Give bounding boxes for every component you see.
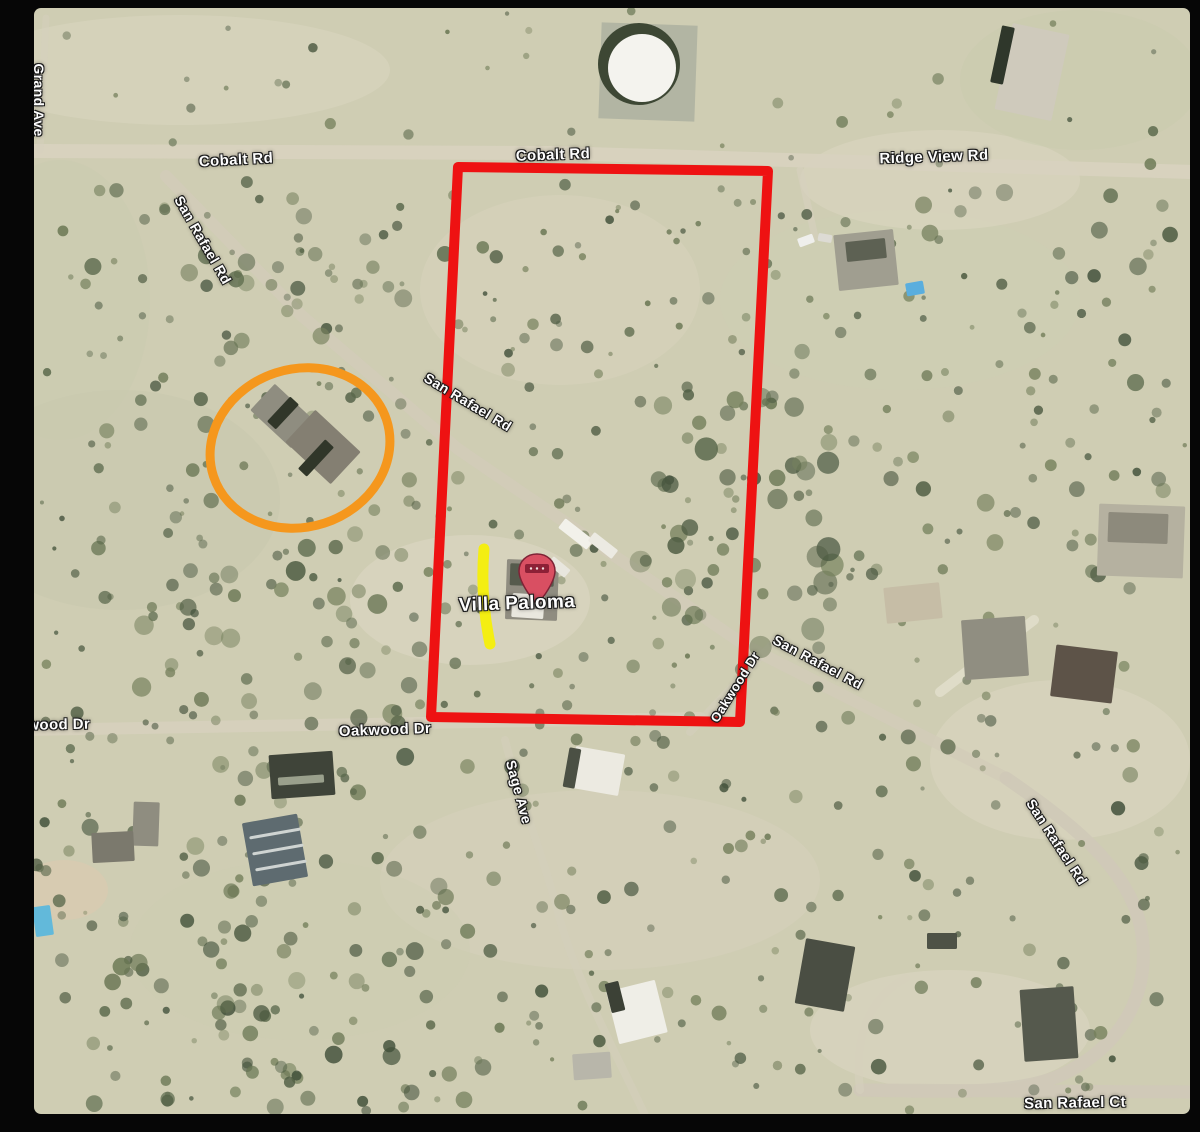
- shrub: [938, 564, 948, 574]
- shrub: [204, 212, 211, 219]
- shrub: [284, 294, 291, 301]
- shrub: [111, 258, 118, 265]
- shrub: [670, 297, 678, 305]
- shrub: [966, 877, 974, 885]
- shrub: [536, 653, 542, 659]
- shrub: [773, 709, 780, 716]
- shrub: [218, 1030, 229, 1041]
- shrub: [759, 1005, 767, 1013]
- shrub: [676, 323, 683, 330]
- shrub: [409, 612, 419, 622]
- shrub: [915, 197, 932, 214]
- shrub: [835, 327, 846, 338]
- shrub: [266, 279, 278, 291]
- shrub: [209, 573, 220, 584]
- shrub: [1041, 333, 1046, 338]
- shrub: [180, 914, 194, 928]
- shrub: [1050, 301, 1058, 309]
- shrub: [627, 8, 636, 15]
- shrub: [271, 1005, 280, 1014]
- shrub: [83, 911, 87, 915]
- shrub: [1045, 459, 1057, 471]
- shrub: [245, 915, 258, 928]
- shrub: [996, 184, 1013, 201]
- shrub: [1149, 417, 1155, 423]
- shrub: [957, 529, 963, 535]
- shrub: [215, 1019, 226, 1030]
- shrub: [372, 852, 384, 864]
- shrub: [567, 866, 576, 875]
- shrub: [838, 1083, 852, 1097]
- shrub: [183, 563, 198, 578]
- shrub: [958, 1089, 967, 1098]
- shrub: [402, 472, 417, 487]
- shrub: [905, 1105, 914, 1114]
- shrub: [710, 645, 715, 650]
- shrub: [1069, 481, 1085, 497]
- shrub: [872, 849, 883, 860]
- shrub: [234, 333, 250, 349]
- shrub: [846, 573, 853, 580]
- shrub: [848, 435, 859, 446]
- shrub: [523, 53, 529, 59]
- shrub: [288, 972, 305, 989]
- shrub: [1149, 992, 1163, 1006]
- shrub: [139, 214, 150, 225]
- shrub: [661, 524, 666, 529]
- screenshot-root: { "map": { "description": "Aerial satell…: [0, 0, 1200, 1132]
- shrub: [579, 652, 589, 662]
- shrub: [732, 495, 739, 502]
- shrub: [138, 274, 147, 283]
- shrub: [854, 312, 862, 320]
- shrub: [449, 657, 461, 669]
- shrub: [972, 750, 980, 758]
- shrub: [393, 582, 403, 592]
- shrub: [1175, 850, 1180, 855]
- shrub: [186, 463, 200, 477]
- shrub: [84, 258, 101, 275]
- shrub: [238, 275, 254, 291]
- shrub: [550, 338, 563, 351]
- shrub: [567, 128, 575, 136]
- shrub: [313, 598, 325, 610]
- shrub: [720, 406, 735, 421]
- shrub: [1092, 742, 1101, 751]
- shrub: [411, 501, 420, 510]
- shrub: [272, 261, 284, 273]
- shrub: [468, 584, 478, 594]
- shrub: [86, 1095, 103, 1112]
- shrub: [1150, 240, 1157, 247]
- shrub: [749, 636, 771, 658]
- shrub: [203, 941, 219, 957]
- terrain-patch: [34, 15, 390, 125]
- shrub: [553, 668, 563, 678]
- shrub: [325, 118, 336, 129]
- shrub: [940, 739, 955, 754]
- shrub: [359, 662, 375, 678]
- shrub: [404, 966, 415, 977]
- shrub: [217, 995, 235, 1013]
- building-house-left-small2: [91, 831, 135, 863]
- shrub: [650, 783, 659, 792]
- shrub: [1029, 368, 1041, 380]
- shrub: [357, 468, 363, 474]
- shrub: [68, 274, 73, 279]
- shrub: [707, 564, 719, 576]
- shrub: [40, 865, 51, 876]
- shrub: [1143, 249, 1154, 260]
- shrub: [1066, 1097, 1077, 1108]
- shrub: [1066, 540, 1078, 552]
- shrub: [773, 1061, 782, 1070]
- shrub: [721, 779, 731, 789]
- shrub: [1121, 915, 1130, 924]
- shrub: [608, 637, 615, 644]
- shrub: [806, 902, 817, 913]
- shrub: [383, 1040, 395, 1052]
- shrub: [784, 397, 803, 416]
- shrub: [441, 701, 448, 708]
- shrub: [337, 767, 348, 778]
- shrub: [728, 335, 737, 344]
- shrub: [158, 373, 168, 383]
- shrub: [991, 800, 1001, 810]
- shrub: [1091, 222, 1108, 239]
- shrub: [569, 684, 575, 690]
- shrub: [246, 1066, 259, 1079]
- shrub: [667, 229, 672, 234]
- shrub: [78, 645, 85, 652]
- shrub: [1103, 708, 1110, 715]
- shrub: [309, 573, 317, 581]
- shrub: [794, 491, 805, 502]
- shrub: [194, 392, 208, 406]
- water-tank-icon: [608, 34, 676, 102]
- shrub: [63, 845, 74, 856]
- shrub: [396, 948, 404, 956]
- shrub: [204, 493, 219, 508]
- shrub: [54, 630, 58, 634]
- shrub: [159, 204, 170, 215]
- shrub: [726, 527, 739, 540]
- shrub: [218, 920, 231, 933]
- shrub: [277, 944, 292, 959]
- shrub: [795, 1064, 806, 1075]
- shrub: [597, 890, 611, 904]
- shrub: [205, 626, 224, 645]
- shrub: [904, 859, 915, 870]
- shrub: [1089, 404, 1099, 414]
- shrub: [396, 203, 404, 211]
- shrub: [533, 1039, 539, 1045]
- shrub: [1017, 308, 1026, 317]
- shrub: [1156, 483, 1171, 498]
- shrub: [667, 537, 684, 554]
- shrub: [398, 1102, 409, 1113]
- shrub: [720, 143, 725, 148]
- shrub: [134, 615, 154, 635]
- shrub: [883, 471, 898, 486]
- shrub: [379, 230, 389, 240]
- shrub: [695, 437, 718, 460]
- shrub: [221, 629, 240, 648]
- shrub: [647, 924, 655, 932]
- shrub: [267, 1099, 284, 1114]
- shrub: [460, 759, 475, 774]
- shrub: [854, 550, 865, 561]
- shrub: [954, 205, 966, 217]
- shrub: [806, 489, 813, 496]
- shrub: [381, 645, 391, 655]
- shrub: [519, 333, 530, 344]
- shrub: [1009, 915, 1015, 921]
- shrub: [1162, 227, 1178, 243]
- shrub: [657, 736, 670, 749]
- shrub: [434, 1096, 440, 1102]
- shrub: [429, 1070, 436, 1077]
- shrub: [442, 1066, 457, 1081]
- shrub: [335, 324, 343, 332]
- building-house-ne-roof: [845, 238, 887, 262]
- shrub: [152, 723, 159, 730]
- shrub: [189, 711, 197, 719]
- shrub: [914, 657, 919, 662]
- shrub: [1108, 359, 1116, 367]
- shrub: [363, 410, 374, 421]
- shrub: [941, 368, 949, 376]
- building-house-tan-right: [883, 582, 942, 624]
- shrub: [347, 526, 363, 542]
- shrub: [166, 579, 179, 592]
- shrub: [135, 394, 147, 406]
- shrub: [922, 523, 933, 534]
- shrub: [792, 456, 807, 471]
- shrub: [772, 98, 783, 109]
- shrub: [403, 129, 413, 139]
- shrub: [585, 950, 593, 958]
- shrub: [1020, 443, 1026, 449]
- shrub: [675, 569, 696, 590]
- shrub: [501, 363, 515, 377]
- shrub: [801, 209, 812, 220]
- shrub: [519, 749, 527, 757]
- shrub: [821, 434, 838, 451]
- shrub: [601, 594, 608, 601]
- shrub: [1111, 801, 1125, 815]
- shrub: [907, 225, 912, 230]
- shrub: [887, 111, 894, 118]
- shrub: [180, 852, 189, 861]
- shrub: [757, 588, 768, 599]
- shrub: [1010, 507, 1021, 518]
- shrub: [214, 356, 225, 367]
- shrub: [109, 502, 121, 514]
- shrub: [868, 1019, 883, 1034]
- shrub: [58, 799, 67, 808]
- shrub: [210, 583, 223, 596]
- shrub: [788, 155, 794, 161]
- shrub: [304, 682, 322, 700]
- shrub: [594, 369, 603, 378]
- shrub: [1162, 379, 1171, 388]
- shrub: [691, 995, 702, 1006]
- shrub: [98, 591, 111, 604]
- shrub: [292, 298, 303, 309]
- shrub: [682, 382, 693, 393]
- building-bottom-right-house: [1020, 986, 1079, 1062]
- shrub: [570, 544, 583, 557]
- map-graphics: [34, 8, 1190, 1114]
- shrub: [921, 370, 932, 381]
- shrub: [294, 653, 302, 661]
- shrub: [71, 706, 84, 719]
- shrub: [1034, 406, 1043, 415]
- shrub: [1077, 309, 1086, 318]
- shrub: [308, 247, 322, 261]
- shrub: [702, 292, 714, 304]
- shrub: [742, 313, 751, 322]
- shrub: [764, 834, 770, 840]
- shrub: [319, 854, 333, 868]
- shrub: [731, 507, 737, 513]
- shrub: [789, 368, 799, 378]
- shrub: [66, 744, 75, 753]
- shrub: [1050, 20, 1057, 27]
- shrub: [88, 440, 95, 447]
- shrub: [923, 879, 934, 890]
- shrub: [556, 321, 562, 327]
- shrub: [239, 461, 248, 470]
- shrub: [727, 1041, 732, 1046]
- shrub: [813, 682, 824, 693]
- shrub: [969, 186, 982, 199]
- shrub: [413, 826, 426, 839]
- shrub: [493, 298, 497, 302]
- shrub: [216, 958, 227, 969]
- shrub: [824, 425, 833, 434]
- shrub: [608, 352, 612, 356]
- shrub: [718, 185, 725, 192]
- building-house-mid-right: [961, 616, 1029, 680]
- shrub: [143, 719, 149, 725]
- shrub: [349, 638, 359, 648]
- shrub: [485, 66, 490, 71]
- shrub: [85, 812, 91, 818]
- shrub: [166, 315, 174, 323]
- shrub: [100, 352, 107, 359]
- shrub: [225, 26, 230, 31]
- shrub: [234, 983, 247, 996]
- shrub: [366, 260, 379, 273]
- shrub: [200, 280, 212, 292]
- shrub: [360, 280, 368, 288]
- shrub: [197, 650, 204, 657]
- shrub: [973, 1059, 984, 1070]
- shrub: [1084, 453, 1091, 460]
- shrub: [241, 673, 253, 685]
- shrub: [571, 734, 583, 746]
- shrub: [284, 932, 298, 946]
- shrub: [996, 279, 1007, 290]
- shrub: [420, 990, 433, 1003]
- shrub: [272, 551, 282, 561]
- shrub: [223, 883, 238, 898]
- shrub: [1102, 298, 1111, 307]
- shrub: [189, 1096, 194, 1101]
- shrub: [303, 922, 309, 928]
- shrub: [536, 901, 548, 913]
- satellite-map[interactable]: Cobalt RdCobalt RdRidge View RdSan Rafae…: [34, 8, 1190, 1114]
- shrub: [767, 489, 787, 509]
- shrub: [514, 530, 524, 540]
- shrub: [841, 711, 855, 725]
- shrub: [970, 325, 975, 330]
- shrub: [294, 233, 303, 242]
- shrub: [681, 519, 698, 536]
- shrub: [892, 98, 902, 108]
- shrub: [350, 788, 357, 795]
- shrub: [113, 958, 131, 976]
- shrub: [281, 305, 293, 317]
- shrub: [404, 1085, 420, 1101]
- shrub: [529, 423, 536, 430]
- shrub: [275, 1061, 287, 1073]
- shrub: [282, 80, 290, 88]
- road-san-rafael-ct: [860, 1090, 1190, 1092]
- shrub: [253, 1005, 269, 1021]
- shrub: [971, 977, 982, 988]
- shrub: [717, 543, 729, 555]
- shrub: [995, 360, 1003, 368]
- shrub: [474, 1056, 482, 1064]
- shrub: [741, 475, 747, 481]
- shrub: [166, 737, 174, 745]
- shrub: [396, 748, 414, 766]
- shrub: [182, 871, 190, 879]
- shrub: [349, 944, 362, 957]
- shrub: [286, 561, 306, 581]
- shrub: [350, 709, 367, 726]
- shrub: [945, 538, 951, 544]
- shrub: [1127, 739, 1140, 752]
- shrub: [901, 729, 916, 744]
- shrub: [451, 471, 465, 485]
- shrub: [296, 247, 305, 256]
- shrub: [624, 882, 639, 897]
- shrub: [494, 1023, 504, 1033]
- shrub: [87, 920, 98, 931]
- shrub: [224, 86, 229, 91]
- shrub: [615, 209, 619, 213]
- shrub: [540, 229, 547, 236]
- shrub: [1152, 408, 1162, 418]
- shrub: [668, 771, 679, 782]
- shrub: [916, 481, 931, 496]
- shrub: [105, 442, 112, 449]
- shrub: [772, 947, 780, 955]
- shrub: [222, 330, 231, 339]
- shrub: [490, 316, 496, 322]
- shrub: [251, 984, 263, 996]
- shrub: [524, 382, 534, 392]
- shrub: [52, 546, 56, 550]
- shrub: [486, 872, 501, 887]
- shrub: [522, 801, 532, 811]
- shrub: [1144, 158, 1156, 170]
- building-small-dark-shed: [927, 933, 957, 949]
